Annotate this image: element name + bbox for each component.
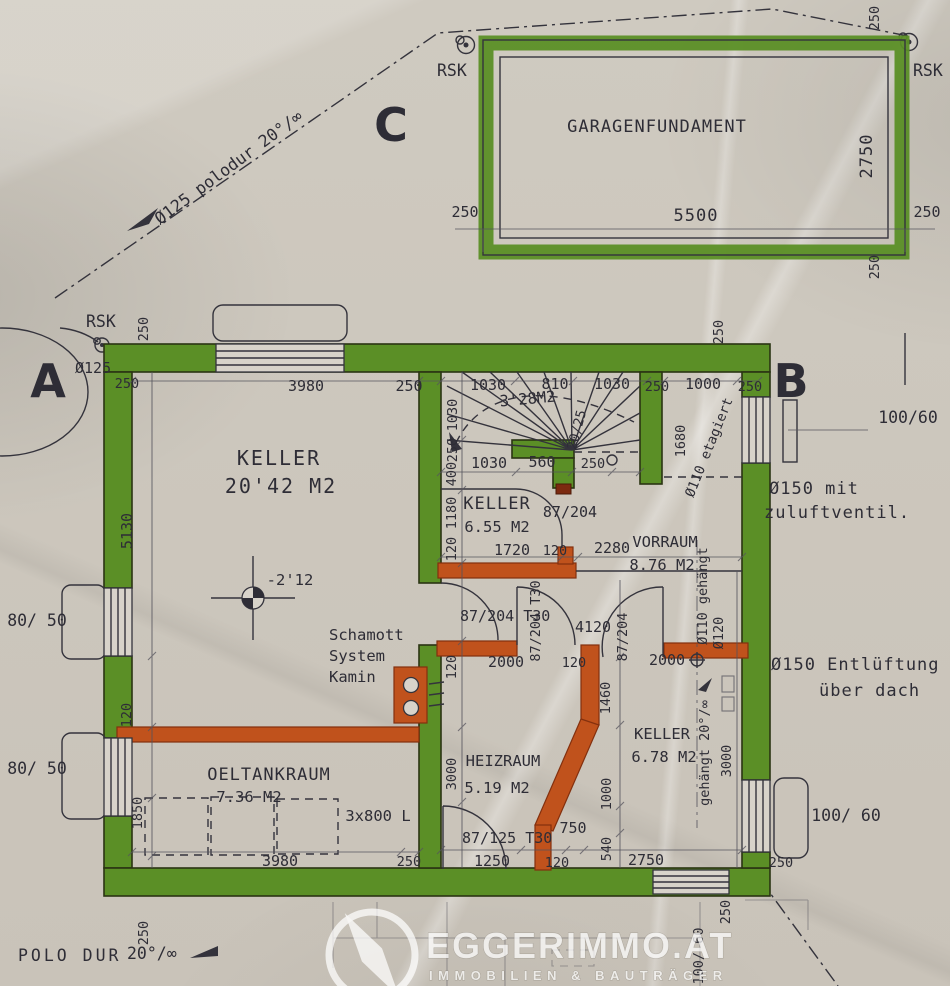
window-label: 80/ 50 xyxy=(7,611,67,630)
dim: 1000 xyxy=(599,778,615,811)
dim: 400 xyxy=(444,462,460,486)
dim: 120 xyxy=(444,537,460,561)
level-label: -2'12 xyxy=(267,571,314,589)
dim: 120 xyxy=(444,655,460,679)
floorplan-canvas: C A B RSK RSK RSK Ø125 Ø125 polodur 20°/… xyxy=(0,0,950,986)
room-keller3-area: 6.78 M2 xyxy=(631,748,696,766)
tanks-label: 3x800 L xyxy=(345,807,410,825)
dim: 1720 xyxy=(494,541,530,559)
door-label: 87/204 xyxy=(543,503,597,521)
dim: 1250 xyxy=(474,852,510,870)
slope-arrow xyxy=(698,678,712,692)
stair-area-label: 3'28M2 xyxy=(499,388,556,411)
window-label: 100/ 60 xyxy=(811,806,881,825)
level-point xyxy=(211,556,295,640)
dim: 250 xyxy=(136,921,152,945)
dim: 250 xyxy=(115,376,139,392)
dim: 1180 xyxy=(444,497,460,530)
dim: 250 xyxy=(711,320,727,344)
section-letter-b: B xyxy=(773,354,808,408)
dim: 750 xyxy=(559,819,586,837)
garage-dim-250-right: 250 xyxy=(913,203,940,221)
flue-1 xyxy=(404,678,419,693)
room-heizraum-area: 5.19 M2 xyxy=(464,779,529,797)
window-label: 100/60 xyxy=(878,408,938,427)
kamin-label-1: Schamott xyxy=(329,626,404,644)
dim: 250 xyxy=(136,317,152,341)
dim: 1460 xyxy=(598,682,614,715)
lightwell-right2 xyxy=(774,778,808,858)
dim: 120 xyxy=(543,543,567,559)
garage-dim-250-tr: 250 xyxy=(867,6,883,30)
garage-title: GARAGENFUNDAMENT xyxy=(567,117,747,137)
watermark: EGGERIMMO.AT IMMOBILIEN & BAUTRÄGER xyxy=(329,907,733,986)
lightwell-top xyxy=(213,305,347,341)
rsk-label-3: RSK xyxy=(86,312,116,331)
dim: 5130 xyxy=(118,513,136,549)
dim: 3000 xyxy=(444,758,460,791)
dim: 560 xyxy=(528,453,555,471)
garage-dim-250-left: 250 xyxy=(451,203,478,221)
dim: 120 xyxy=(119,703,135,727)
zuluft-label-2: zuluftventil. xyxy=(764,503,910,523)
dim: 1030 xyxy=(470,376,506,394)
section-letter-c: C xyxy=(374,98,408,152)
door-label: 87/204 xyxy=(615,613,631,662)
rsk-markers xyxy=(94,33,918,352)
pipe-gehaengt2-label: gehängt 20°/∞ xyxy=(697,700,713,806)
dim: 250 xyxy=(769,855,793,871)
garage-dim-250-br: 250 xyxy=(867,255,883,279)
room-oeltankraum-name: OELTANKRAUM xyxy=(207,765,331,785)
entlueftung-label-2: über dach xyxy=(819,681,920,701)
tank-3 xyxy=(277,799,338,854)
dim: 3980 xyxy=(262,852,298,870)
lightwell-left1 xyxy=(62,585,106,659)
flue-2 xyxy=(404,701,419,716)
zuluft-label-1: Ø150 mit xyxy=(769,479,859,499)
pipe-etagiert-label: Ø110 etagiert xyxy=(682,396,736,500)
polodur-slope: 20°/∞ xyxy=(127,944,177,963)
door-label: 87/204 T30 xyxy=(528,580,544,661)
shaft-right xyxy=(783,400,797,462)
kamin-label-3: Kamin xyxy=(329,668,376,686)
tank-1 xyxy=(145,798,208,855)
dim: 1030 xyxy=(594,375,630,393)
section-letter-a: A xyxy=(30,354,66,408)
dim: 2280 xyxy=(594,539,630,557)
dim: 2000 xyxy=(488,653,524,671)
window-label: 80/ 50 xyxy=(7,759,67,778)
dim: 1000 xyxy=(685,375,721,393)
room-heizraum-name: HEIZRAUM xyxy=(466,752,541,770)
room-oeltankraum-area: 7.36 M2 xyxy=(216,788,281,806)
dim: 250 xyxy=(395,377,422,395)
dim: 250 xyxy=(581,456,605,472)
polodur-label: POLO DUR xyxy=(18,946,121,965)
dim: 250 xyxy=(645,379,669,395)
dim: 120 xyxy=(562,655,586,671)
garage-dim-2750: 2750 xyxy=(857,134,877,179)
polodur-arrow xyxy=(190,946,218,958)
room-keller1-area: 20'42 M2 xyxy=(225,474,337,498)
door-arc-keller3 xyxy=(602,587,663,657)
stair-newel xyxy=(607,455,617,465)
stair-step-label: 20/25 xyxy=(564,408,590,451)
pipe-diagonal-label: Ø125 polodur 20°/∞ xyxy=(151,107,306,229)
entlueftung-label-1: Ø150 Entlüftung xyxy=(771,655,940,675)
room-vorraum-name: VORRAUM xyxy=(632,533,697,551)
dim: 3000 xyxy=(719,745,735,778)
dim: 1030 xyxy=(445,399,461,432)
room-keller2-area: 6.55 M2 xyxy=(464,518,529,536)
dim: 250 xyxy=(445,438,461,462)
room-vorraum-area: 8.76 M2 xyxy=(629,556,694,574)
rsk-label-1: RSK xyxy=(437,61,467,80)
dim: 250 xyxy=(397,854,421,870)
door-label: 87/125 T30 xyxy=(462,829,552,847)
lightwell-left2 xyxy=(62,733,106,819)
dim: 3980 xyxy=(288,377,324,395)
dim: 1680 xyxy=(673,425,689,458)
dim: 1030 xyxy=(471,454,507,472)
labels: C A B RSK RSK RSK Ø125 Ø125 polodur 20°/… xyxy=(7,6,943,985)
dim: 1850 xyxy=(130,797,146,830)
pipe-gehaengt-label: Ø110 gehängt xyxy=(695,547,711,645)
scanned-floorplan-page: C A B RSK RSK RSK Ø125 Ø125 polodur 20°/… xyxy=(0,0,950,986)
pipe-d120-label: Ø120 xyxy=(711,617,727,650)
eggerimmo-logo-icon xyxy=(329,907,415,986)
garage-dim-5500: 5500 xyxy=(674,206,719,226)
dim: 2000 xyxy=(649,651,685,669)
dim: 540 xyxy=(599,837,615,861)
watermark-tagline: IMMOBILIEN & BAUTRÄGER xyxy=(429,968,728,983)
dim: 4120 xyxy=(575,618,611,636)
dim: 2750 xyxy=(628,851,664,869)
room-keller3-name: KELLER xyxy=(634,725,691,743)
dim: 250 xyxy=(718,900,734,924)
dim: 120 xyxy=(545,855,569,871)
room-keller1-name: KELLER xyxy=(237,446,321,470)
watermark-brand: EGGERIMMO.AT xyxy=(426,925,733,966)
rsk-label-2: RSK xyxy=(913,61,943,80)
pipe-o125-label: Ø125 xyxy=(75,359,111,377)
room-keller2-name: KELLER xyxy=(463,494,530,514)
kamin-label-2: System xyxy=(329,647,385,665)
dim: 250 xyxy=(738,379,762,395)
